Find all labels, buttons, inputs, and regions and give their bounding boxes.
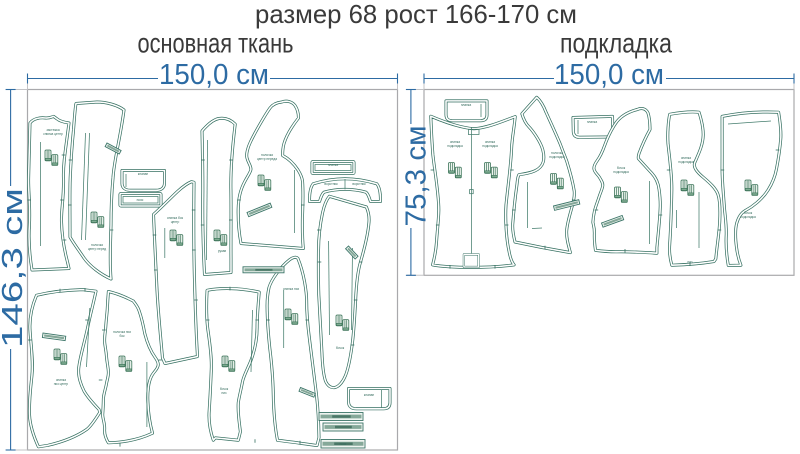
svg-text:размер 68 рост 166-170 см: размер 68 рост 166-170 см [255,0,577,29]
svg-text:146,3 см: 146,3 см [0,188,29,348]
svg-text:пояс: пояс [137,198,144,202]
svg-text:планка: планка [328,163,339,167]
svg-text:подкладка: подкладка [560,28,672,59]
svg-text:низ центр: низ центр [54,382,69,386]
svg-text:подкладка: подкладка [613,170,629,174]
svg-text:низ: низ [221,391,227,395]
svg-text:основная ткань: основная ткань [138,28,294,59]
svg-text:пояс: пояс [340,442,347,446]
svg-text:воротник: воротник [352,182,366,186]
svg-text:бочок: бочок [336,346,345,350]
svg-text:центр перед: центр перед [88,247,106,251]
svg-text:спинка центр: спинка центр [43,132,63,136]
svg-text:подкладка: подкладка [447,144,463,148]
svg-text:клапан: клапан [138,172,149,176]
svg-text:низ: низ [687,260,693,264]
svg-text:подкладка: подкладка [482,144,498,148]
svg-text:центр переда: центр переда [257,157,277,161]
svg-text:планка: планка [587,120,598,124]
svg-text:воротник: воротник [324,182,338,186]
svg-text:планка: планка [461,103,472,107]
svg-text:клапан: клапан [364,393,375,397]
svg-text:бок: бок [120,334,126,338]
svg-text:подкладка: подкладка [740,215,756,219]
svg-text:150,0 см: 150,0 см [554,59,664,91]
svg-text:150,0 см: 150,0 см [159,59,269,91]
svg-text:подкладка: подкладка [549,155,565,159]
svg-text:подкладка: подкладка [678,160,694,164]
svg-text:75,3 см: 75,3 см [401,126,433,227]
svg-text:рукав: рукав [218,249,227,253]
svg-text:спинка низ: спинка низ [283,287,300,291]
svg-text:центр: центр [171,220,180,224]
